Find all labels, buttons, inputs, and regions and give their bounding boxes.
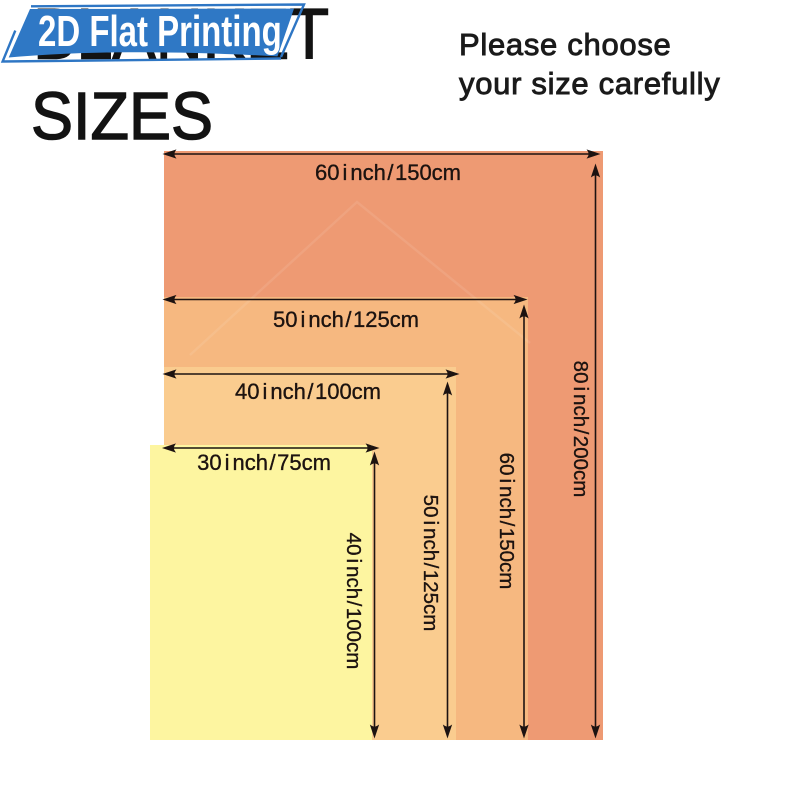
svg-text:40inch/100cm: 40inch/100cm: [342, 533, 365, 670]
svg-text:80inch/200cm: 80inch/200cm: [569, 361, 592, 498]
svg-text:2D Flat Printing: 2D Flat Printing: [38, 8, 282, 57]
svg-text:Please choose: Please choose: [459, 27, 671, 62]
svg-text:60inch/150cm: 60inch/150cm: [495, 453, 518, 590]
svg-text:40inch/100cm: 40inch/100cm: [235, 379, 381, 404]
svg-text:SIZES: SIZES: [31, 79, 213, 154]
svg-text:50inch/125cm: 50inch/125cm: [273, 307, 419, 332]
svg-text:50inch/125cm: 50inch/125cm: [419, 495, 442, 632]
svg-text:30inch/75cm: 30inch/75cm: [197, 450, 331, 475]
svg-text:your size carefully: your size carefully: [459, 66, 720, 101]
svg-text:60inch/150cm: 60inch/150cm: [315, 160, 461, 185]
